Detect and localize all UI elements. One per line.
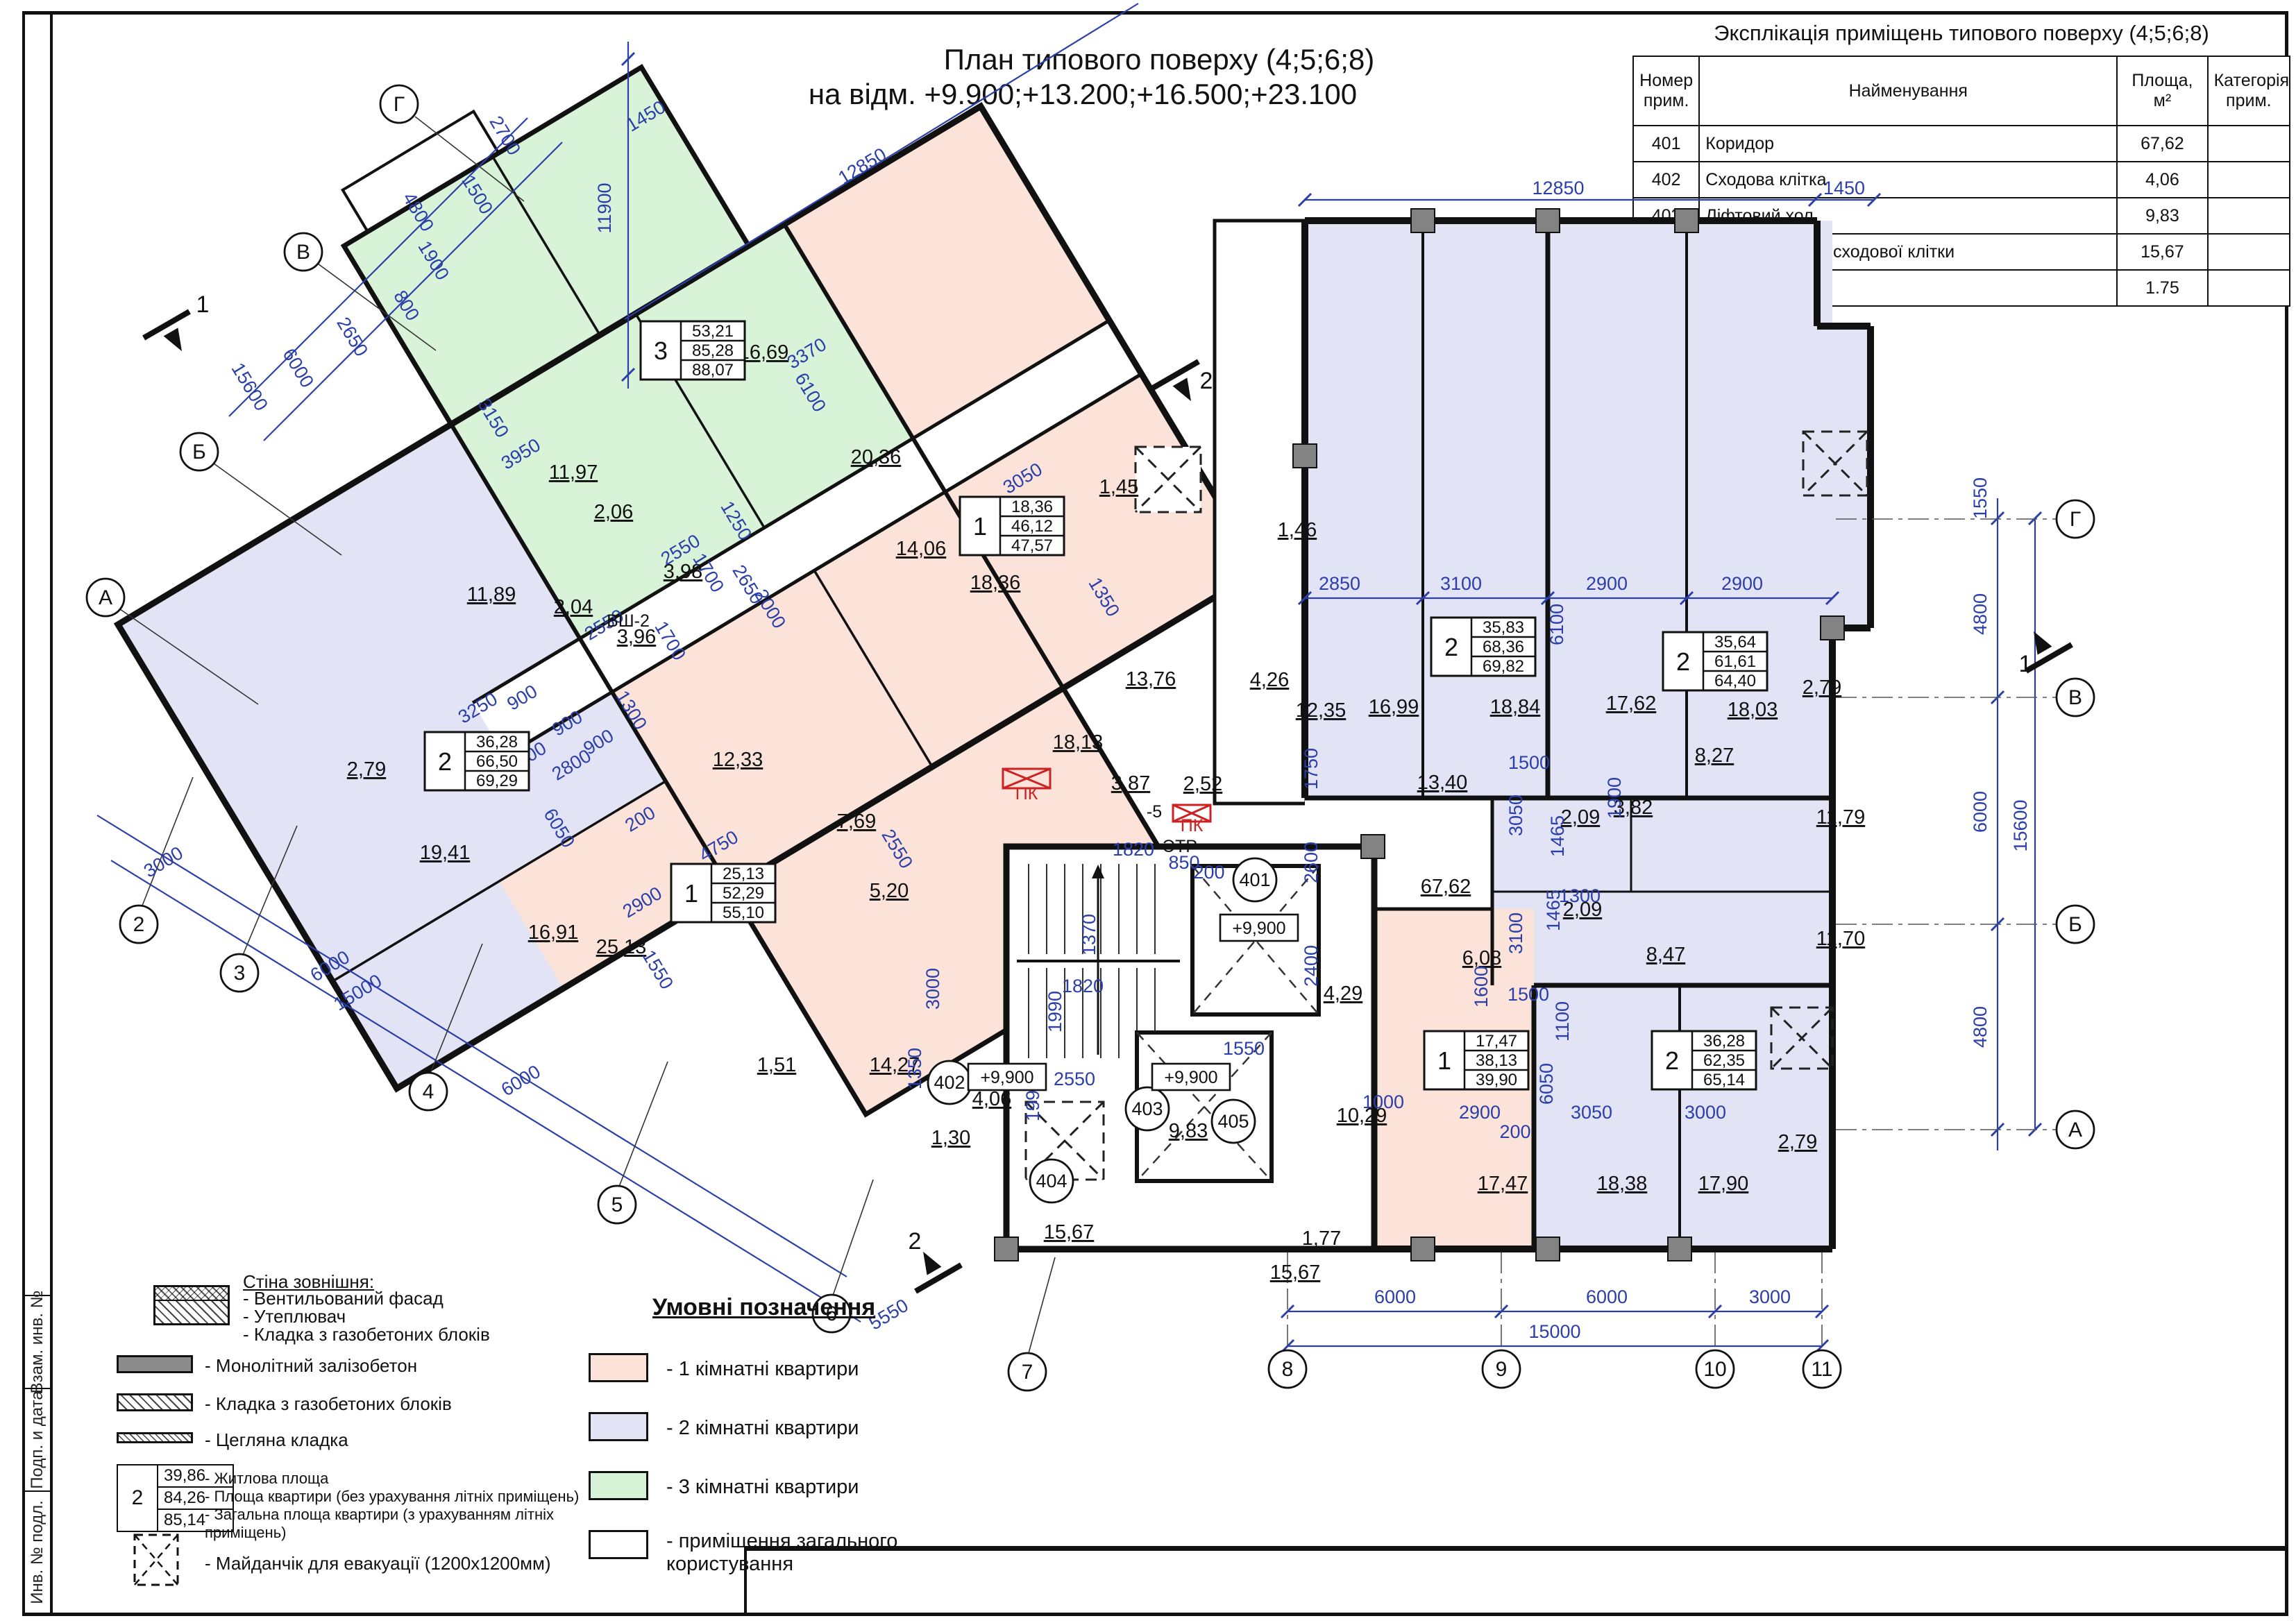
legend-label-1room: - 1 кімнатні квартири bbox=[666, 1358, 859, 1381]
color-legend-title: Умовні позначення bbox=[652, 1294, 875, 1321]
dim-label: 4800 bbox=[1970, 593, 1991, 635]
room-area-label: 11,89 bbox=[467, 584, 516, 606]
apartment-rooms-count: 2 bbox=[1676, 647, 1690, 676]
room-area-label: 19,41 bbox=[420, 842, 471, 864]
evac-square-junction bbox=[1136, 447, 1201, 512]
apartment-area-value: 36,28 bbox=[1703, 1032, 1745, 1051]
dim-label: 15000 bbox=[1528, 1321, 1580, 1342]
legend-swatch-3room bbox=[589, 1471, 648, 1500]
dim-label: 11900 bbox=[594, 182, 615, 233]
axis-circle-label: 2 bbox=[133, 913, 145, 936]
apartment-area-value: 47,57 bbox=[1011, 536, 1053, 555]
dim-label: 200 bbox=[1193, 862, 1224, 883]
axis-circle-label: 4 bbox=[423, 1080, 434, 1103]
apartment-area-value: 55,10 bbox=[723, 903, 764, 922]
area-tag-num: 2 bbox=[118, 1465, 158, 1531]
apartment-area-value: 17,47 bbox=[1476, 1032, 1517, 1051]
apartment-area-value: 18,36 bbox=[1011, 498, 1053, 516]
room-area-label: 16,69 bbox=[738, 341, 789, 364]
room-area-label: 20,36 bbox=[851, 446, 902, 468]
section-number-label: 2 bbox=[1200, 368, 1213, 394]
gasblock-swatch bbox=[117, 1393, 193, 1411]
room-area-label: 2,52 bbox=[1183, 773, 1222, 795]
room-area-label: 13,40 bbox=[1417, 772, 1468, 794]
room-number-label: 401 bbox=[1239, 869, 1270, 890]
pk-label: ПК bbox=[1015, 784, 1038, 804]
room-area-label: 1,77 bbox=[1302, 1227, 1341, 1250]
room-area-label: 8,27 bbox=[1695, 745, 1734, 767]
monolith-swatch bbox=[117, 1355, 193, 1373]
axis-circle-label: 8 bbox=[1282, 1358, 1294, 1381]
dim-label: 2550 bbox=[1054, 1069, 1095, 1089]
room-area-label: 1,30 bbox=[931, 1127, 970, 1149]
room-area-label: 2,06 bbox=[594, 501, 633, 523]
legend-label-common: - приміщення загального користування bbox=[666, 1530, 930, 1576]
wall-legend: Стіна зовнішня: - Вентильований фасад - … bbox=[66, 1242, 593, 1603]
brick-label: - Цегляна кладка bbox=[205, 1429, 348, 1451]
legend-swatch-2room bbox=[589, 1412, 648, 1441]
axis-circle-label: А bbox=[99, 586, 112, 609]
dim-label: 3000 bbox=[1749, 1286, 1791, 1307]
monolith-label: - Монолітний залізобетон bbox=[205, 1355, 417, 1377]
misc-plan-label: ЭТР bbox=[1163, 837, 1197, 856]
dim-label: 1300 bbox=[1559, 885, 1601, 906]
room-area-label: 25,13 bbox=[596, 936, 647, 958]
room-area-label: 5,20 bbox=[870, 880, 909, 902]
dim-label: 1000 bbox=[1362, 1091, 1404, 1112]
room-area-label: 14,06 bbox=[896, 538, 947, 560]
room-area-label: 1,46 bbox=[1278, 519, 1317, 541]
area-line-1: - Житлова площа bbox=[205, 1470, 328, 1488]
dim-label: 15600 bbox=[2010, 799, 2031, 851]
apartment-area-value: 88,07 bbox=[692, 361, 734, 380]
gasblock-label: - Кладка з газобетоних блоків bbox=[205, 1393, 452, 1415]
area-line-2: - Площа квартири (без урахування літніх … bbox=[205, 1488, 579, 1506]
elevation-label: +9,900 bbox=[1164, 1068, 1217, 1087]
evac-legend-swatch bbox=[132, 1532, 180, 1588]
room-area-label: 1,51 bbox=[757, 1054, 796, 1076]
dim-label: 1550 bbox=[1970, 477, 1991, 519]
apartment-area-value: 69,82 bbox=[1483, 657, 1524, 676]
dim-label: 6000 bbox=[1970, 791, 1991, 833]
dim-label: 2600 bbox=[1301, 842, 1322, 883]
room-area-label: 4,26 bbox=[1250, 669, 1289, 691]
room-area-label: 18,03 bbox=[1728, 699, 1778, 721]
axis-circle-label: 11 bbox=[1811, 1358, 1832, 1381]
dim-label: 1900 bbox=[1604, 777, 1625, 819]
room-area-label: 1,45 bbox=[1099, 476, 1138, 498]
wall-sandwich-swatch bbox=[153, 1285, 230, 1325]
room-number-label: 404 bbox=[1036, 1171, 1067, 1191]
room-area-label: 12,33 bbox=[713, 749, 763, 771]
dim-label: 12850 bbox=[1532, 178, 1584, 198]
apartment-area-value: 35,83 bbox=[1483, 618, 1524, 637]
room-number-label: 403 bbox=[1131, 1098, 1163, 1119]
apartment-area-value: 25,13 bbox=[723, 865, 764, 883]
apartment-rooms-count: 2 bbox=[1665, 1046, 1679, 1075]
color-legend: Умовні позначення - 1 кімнатні квартири … bbox=[583, 1287, 944, 1599]
room-area-label: 4,06 bbox=[972, 1088, 1011, 1110]
axis-circle-label: 7 bbox=[1022, 1361, 1033, 1384]
section-mark bbox=[144, 312, 205, 364]
dim-label: 1500 bbox=[1508, 752, 1550, 773]
junction-shaft bbox=[1215, 221, 1306, 804]
dim-label: 2900 bbox=[1586, 573, 1628, 594]
apartment-area-value: 64,40 bbox=[1714, 672, 1756, 690]
axis-circle-label: Б bbox=[2068, 913, 2082, 936]
apartment-area-value: 68,36 bbox=[1483, 638, 1524, 656]
room-area-label: 67,62 bbox=[1421, 876, 1471, 898]
dim-label: 200 bbox=[1499, 1121, 1530, 1142]
apartment-area-value: 69,29 bbox=[476, 772, 518, 790]
brick-swatch bbox=[117, 1432, 193, 1443]
apartment-area-value: 35,64 bbox=[1714, 633, 1756, 652]
dim-label: 1820 bbox=[1062, 976, 1104, 996]
apartment-rooms-count: 1 bbox=[684, 879, 698, 908]
section-number-label: 1 bbox=[196, 291, 210, 318]
dim-label: 3000 bbox=[922, 968, 943, 1010]
apartment-rooms-count: 1 bbox=[1437, 1046, 1451, 1075]
dim-label: 1550 bbox=[638, 946, 677, 993]
room-area-label: 17,90 bbox=[1698, 1173, 1749, 1195]
room-number-label: 402 bbox=[934, 1072, 965, 1093]
room-area-label: 2,79 bbox=[347, 758, 386, 781]
room-area-label: 17,62 bbox=[1606, 692, 1657, 715]
elevation-label: +9,900 bbox=[980, 1068, 1033, 1087]
room-area-label: 9,83 bbox=[1169, 1120, 1208, 1142]
room-area-label: 3,87 bbox=[1111, 772, 1150, 794]
apartment-area-value: 85,28 bbox=[692, 341, 734, 360]
dim-label: 6050 bbox=[1536, 1063, 1557, 1105]
apartment-rooms-count: 3 bbox=[654, 337, 668, 365]
room-area-label: 2,79 bbox=[1778, 1131, 1817, 1153]
apartment-area-value: 62,35 bbox=[1703, 1051, 1745, 1070]
axis-circle-label: 3 bbox=[234, 962, 246, 985]
room-area-label: 2,04 bbox=[554, 596, 593, 618]
legend-label-3room: - 3 кімнатні квартири bbox=[666, 1476, 859, 1499]
room-number-label: 405 bbox=[1217, 1111, 1249, 1132]
dim-label: 1450 bbox=[1823, 178, 1865, 198]
room-area-label: 18,84 bbox=[1490, 696, 1541, 718]
apartment-rooms-count: 2 bbox=[438, 747, 452, 776]
room-area-label: 16,91 bbox=[528, 921, 579, 944]
room-area-label: 18,13 bbox=[1053, 731, 1104, 754]
dim-label: 1350 bbox=[904, 1048, 925, 1089]
dim-label: 1550 bbox=[1223, 1038, 1265, 1059]
room-area-label: 4,29 bbox=[1324, 983, 1362, 1005]
axis-circle-label: 9 bbox=[1496, 1358, 1508, 1381]
axis-circle-label: 5 bbox=[611, 1193, 623, 1216]
drawing-sheet: Взам. инв. № Подп. и дата Инв. № подл. П… bbox=[0, 0, 2296, 1623]
dim-label: 1820 bbox=[1113, 839, 1154, 860]
apartment-area-value: 36,28 bbox=[476, 733, 518, 751]
dim-label: 3000 bbox=[140, 842, 187, 882]
misc-plan-label: -5 bbox=[1147, 802, 1162, 822]
dim-label: 1465 bbox=[1543, 890, 1564, 931]
room-area-label: 15,67 bbox=[1270, 1261, 1321, 1284]
section-number-label: 2 bbox=[909, 1228, 922, 1255]
section-number-label: 1 bbox=[2019, 651, 2032, 677]
evac-legend-label: - Майданчік для евакуації (1200х1200мм) bbox=[205, 1553, 551, 1574]
room-area-label: 11,97 bbox=[549, 461, 598, 484]
dim-label: 2900 bbox=[1459, 1102, 1501, 1123]
dim-label: 6000 bbox=[1586, 1286, 1628, 1307]
dim-label: 2650 bbox=[332, 314, 372, 360]
dim-label: 3100 bbox=[1440, 573, 1482, 594]
dim-label: 2900 bbox=[1721, 573, 1763, 594]
wall-legend-l3: - Кладка з газобетоних блоків bbox=[243, 1324, 490, 1345]
dim-label: 1750 bbox=[1301, 748, 1322, 790]
dim-label: 2850 bbox=[1319, 573, 1360, 594]
dim-label: 1500 bbox=[1508, 984, 1549, 1005]
apartment-area-value: 53,21 bbox=[692, 322, 734, 341]
room-area-label: 18,36 bbox=[970, 572, 1021, 594]
dim-label: 6000 bbox=[278, 345, 318, 391]
dim-label: 1600 bbox=[1471, 966, 1492, 1008]
apartment-rooms-count: 2 bbox=[1444, 633, 1458, 661]
room-area-label: 16,99 bbox=[1369, 696, 1419, 718]
axis-circle-label: В bbox=[2068, 686, 2082, 709]
dim-label: 2400 bbox=[1301, 945, 1322, 987]
dim-label: 1100 bbox=[1552, 1001, 1573, 1042]
apartment-area-value: 38,13 bbox=[1476, 1051, 1517, 1070]
pk-label: ПК bbox=[1181, 816, 1204, 835]
dim-label: 6100 bbox=[1546, 604, 1567, 645]
legend-label-2room: - 2 кімнатні квартири bbox=[666, 1417, 859, 1440]
apartment-area-value: 61,61 bbox=[1714, 652, 1756, 671]
area-line-3: - Загальна площа квартири (з урахуванням… bbox=[205, 1506, 593, 1542]
misc-plan-label: ВШ-2 bbox=[607, 611, 650, 631]
room-area-label: 8,47 bbox=[1646, 944, 1685, 966]
apartment-area-value: 39,90 bbox=[1476, 1071, 1517, 1089]
axis-circle-label: Г bbox=[394, 93, 405, 116]
room-area-label: 12,35 bbox=[1296, 699, 1347, 722]
legend-swatch-1room bbox=[589, 1353, 648, 1382]
apartment-rooms-count: 1 bbox=[973, 512, 987, 541]
axis-circle-label: А bbox=[2068, 1119, 2082, 1141]
dim-label: 1990 bbox=[1045, 991, 1065, 1033]
dim-label: 15600 bbox=[228, 359, 272, 414]
dim-label: 3050 bbox=[1505, 794, 1526, 836]
room-area-label: 2,79 bbox=[1803, 677, 1841, 699]
room-area-label: 11,70 bbox=[1816, 928, 1865, 950]
axis-circle-label: 10 bbox=[1703, 1358, 1726, 1381]
dim-label: 6000 bbox=[1374, 1286, 1416, 1307]
dim-label: 3000 bbox=[1685, 1102, 1726, 1123]
room-area-label: 15,67 bbox=[1044, 1221, 1095, 1243]
dim-label: 3050 bbox=[1571, 1102, 1612, 1123]
room-area-label: 18,38 bbox=[1597, 1173, 1648, 1195]
axis-circle-label: В bbox=[296, 241, 310, 264]
apartment-area-value: 65,14 bbox=[1703, 1071, 1745, 1089]
dim-label: 1465 bbox=[1547, 815, 1568, 857]
apartment-area-value: 66,50 bbox=[476, 752, 518, 771]
apartment-area-value: 52,29 bbox=[723, 884, 764, 903]
axis-circle-label: Б bbox=[192, 441, 206, 464]
legend-swatch-common bbox=[589, 1530, 648, 1559]
room-area-label: 11,79 bbox=[1816, 806, 1865, 829]
apartment-area-value: 46,12 bbox=[1011, 517, 1053, 536]
elevation-label: +9,900 bbox=[1232, 919, 1285, 938]
axis-circle-label: Г bbox=[2070, 508, 2081, 531]
room-area-label: 7,69 bbox=[837, 810, 876, 833]
room-area-label: 13,76 bbox=[1126, 668, 1176, 690]
dim-label: 3100 bbox=[1505, 912, 1526, 954]
dim-label: 1370 bbox=[1079, 914, 1099, 955]
room-area-label: 17,47 bbox=[1478, 1173, 1528, 1195]
dim-label: 4800 bbox=[1970, 1006, 1991, 1048]
